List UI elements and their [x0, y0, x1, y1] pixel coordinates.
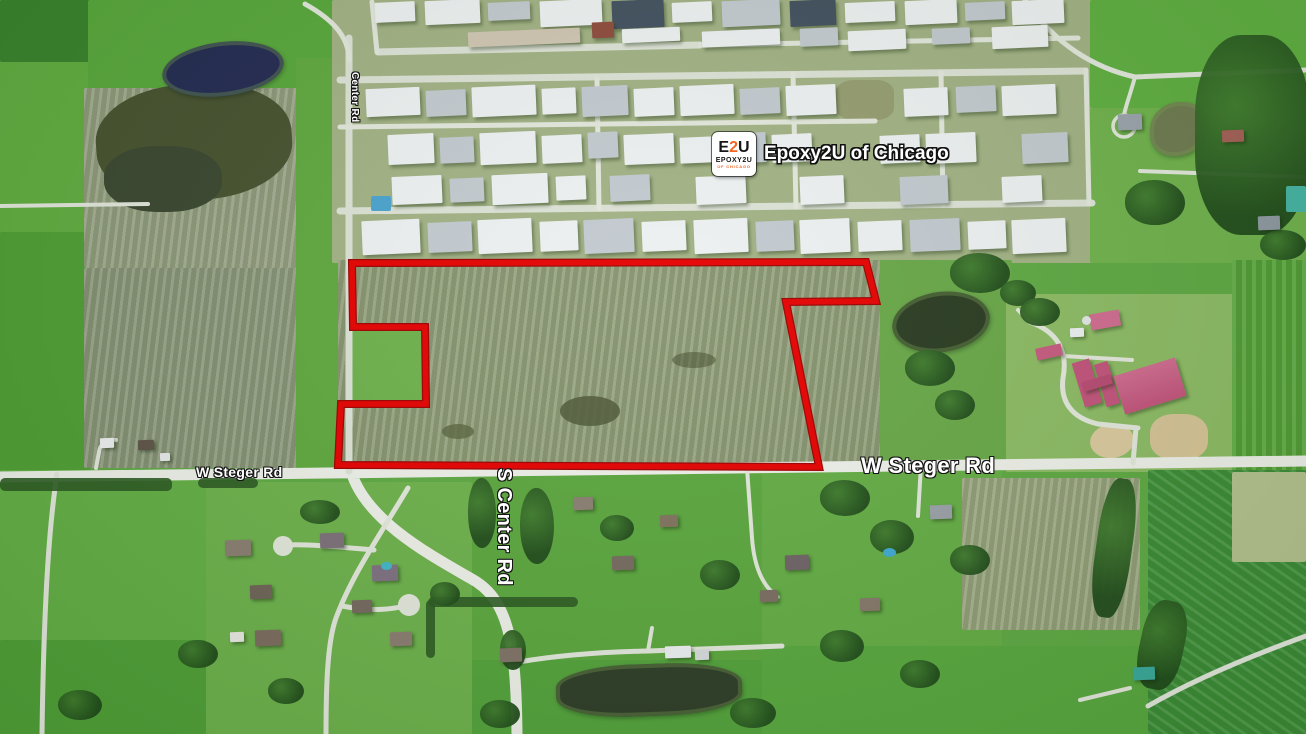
epoxy2u-logo-icon[interactable]: E2U EPOXY2U OF CHICAGO — [712, 132, 756, 176]
road-label-w-steger-right: W Steger Rd — [861, 453, 995, 479]
road-label-center: Center Rd — [349, 72, 360, 138]
boundary-layer — [0, 0, 1306, 734]
poi-label-epoxy2u[interactable]: Epoxy2U of Chicago — [764, 143, 949, 165]
road-label-w-steger-left: W Steger Rd — [196, 464, 283, 480]
logo-text-of-chicago: OF CHICAGO — [717, 165, 751, 169]
satellite-map[interactable]: E2U EPOXY2U OF CHICAGO Epoxy2U of Chicag… — [0, 0, 1306, 734]
road-label-s-center: S Center Rd — [492, 468, 515, 628]
logo-text-e2u: E2U — [718, 140, 749, 156]
logo-text-epoxy2u: EPOXY2U — [716, 157, 753, 164]
property-boundary-outline — [338, 262, 876, 467]
